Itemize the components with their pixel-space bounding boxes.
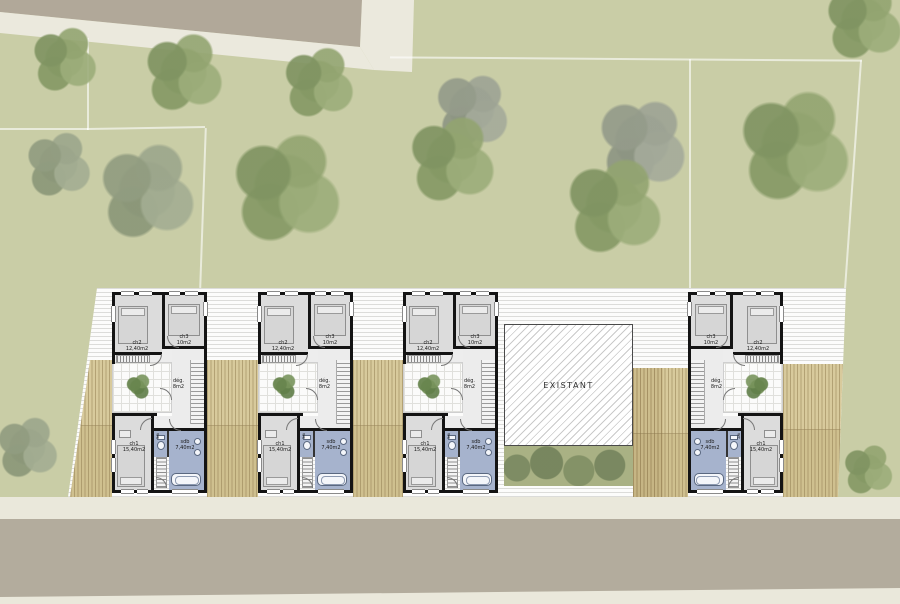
- label-deg: dég.8m2: [704, 378, 729, 390]
- house-unit-4: ch212,40m2 ch310m2 dég.8m2 ch115,40m2 sd…: [688, 292, 783, 493]
- wall: [691, 346, 730, 349]
- window: [111, 306, 116, 322]
- window: [412, 291, 425, 296]
- label-ch3: ch310m2: [311, 334, 349, 346]
- window: [285, 291, 298, 296]
- parcel-line: [199, 128, 206, 288]
- window: [283, 489, 294, 494]
- parcel-line: [390, 56, 862, 61]
- wood-deck: [207, 360, 258, 497]
- courtyard-tree-icon: [124, 373, 152, 401]
- tree-icon: [95, 142, 195, 242]
- wall: [167, 431, 169, 457]
- wall: [738, 413, 783, 416]
- bathtub-symbol: [694, 473, 724, 486]
- desk-symbol: [410, 430, 422, 438]
- label-sdb: sdb7,40m2: [461, 439, 491, 451]
- label-wc: wc: [733, 433, 743, 455]
- window: [257, 306, 262, 322]
- tree-icon: [841, 444, 893, 496]
- bed-symbol: [118, 306, 148, 344]
- window: [779, 440, 784, 454]
- window: [687, 302, 692, 316]
- window: [169, 291, 180, 296]
- label-ch1: ch115,40m2: [743, 441, 779, 453]
- tree-icon: [280, 46, 354, 120]
- wall: [456, 346, 495, 349]
- label-deg: dég.8m2: [457, 378, 482, 390]
- label-deg: dég.8m2: [312, 378, 337, 390]
- label-deg: dég.8m2: [166, 378, 191, 390]
- window: [715, 291, 726, 296]
- window: [121, 489, 134, 494]
- wardrobe: [116, 355, 150, 363]
- window: [430, 291, 443, 296]
- staircase: [336, 360, 350, 424]
- tree-icon: [405, 115, 495, 205]
- window: [779, 458, 784, 472]
- window: [331, 291, 344, 296]
- courtyard-tree-icon: [415, 373, 443, 401]
- window: [121, 291, 134, 296]
- window: [267, 291, 280, 296]
- bed-symbol: [168, 304, 200, 336]
- bed-symbol: [695, 304, 727, 336]
- hedge: [504, 446, 633, 486]
- wardrobe: [407, 355, 441, 363]
- window: [185, 291, 198, 296]
- window: [139, 291, 152, 296]
- wall: [165, 346, 204, 349]
- window: [137, 489, 148, 494]
- bed-symbol: [314, 304, 346, 336]
- label-ch2: ch212,40m2: [741, 340, 775, 352]
- staircase: [190, 360, 204, 424]
- window: [402, 306, 407, 322]
- window: [402, 458, 407, 472]
- label-ch3: ch310m2: [165, 334, 203, 346]
- window: [476, 291, 489, 296]
- existing-building: EXISTANT: [504, 324, 633, 446]
- bed-symbol: [747, 306, 777, 344]
- wall: [495, 292, 498, 493]
- label-ch2: ch212,40m2: [411, 340, 445, 352]
- window: [315, 291, 326, 296]
- desk-symbol: [265, 430, 277, 438]
- bed-symbol: [264, 306, 294, 344]
- label-ch2: ch212,40m2: [120, 340, 154, 352]
- parcel-line: [689, 59, 691, 288]
- label-wc: wc: [298, 433, 308, 455]
- tree-icon: [822, 0, 900, 62]
- window: [460, 291, 471, 296]
- window: [412, 489, 425, 494]
- window: [779, 306, 784, 322]
- site-plan: EXISTANT: [0, 0, 900, 604]
- tree-icon: [734, 89, 850, 205]
- window: [761, 489, 774, 494]
- tree-icon: [562, 157, 662, 257]
- bathtub-symbol: [317, 473, 347, 486]
- tree-icon: [29, 26, 97, 94]
- wall: [726, 431, 728, 457]
- bed-symbol: [459, 304, 491, 336]
- window: [747, 489, 758, 494]
- tree-icon: [23, 131, 91, 199]
- tree-icon: [141, 32, 223, 114]
- wall: [730, 295, 733, 349]
- wall: [311, 346, 350, 349]
- label-ch3: ch310m2: [692, 334, 730, 346]
- window: [349, 302, 354, 316]
- label-sdb: sdb7,40m2: [316, 439, 346, 451]
- house-unit-1: ch212,40m2 ch310m2 dég.8m2 ch115,40m2 sd…: [112, 292, 207, 493]
- window: [697, 489, 723, 494]
- window: [318, 489, 344, 494]
- parcel-line: [87, 126, 205, 130]
- window: [494, 302, 499, 316]
- wood-deck: [783, 364, 845, 497]
- house-unit-3: ch212,40m2 ch310m2 dég.8m2 ch115,40m2 sd…: [403, 292, 498, 493]
- courtyard-tree-icon: [270, 373, 298, 401]
- label-wc: wc: [443, 433, 453, 455]
- window: [111, 458, 116, 472]
- existing-building-label: EXISTANT: [543, 381, 594, 390]
- window: [203, 302, 208, 316]
- wardrobe: [745, 355, 779, 363]
- wall: [204, 292, 207, 493]
- wall: [350, 292, 353, 493]
- window: [463, 489, 489, 494]
- tree-icon: [0, 416, 58, 480]
- desk-symbol: [119, 430, 131, 438]
- wall: [688, 292, 691, 493]
- tree-icon: [227, 132, 341, 246]
- wood-deck: [353, 360, 403, 497]
- desk-symbol: [764, 430, 776, 438]
- house-unit-2: ch212,40m2 ch310m2 dég.8m2 ch115,40m2 sd…: [258, 292, 353, 493]
- label-ch1: ch115,40m2: [116, 441, 152, 453]
- courtyard-tree-icon: [743, 373, 771, 401]
- bed-symbol: [409, 306, 439, 344]
- parcel-line: [0, 128, 88, 130]
- window: [761, 291, 774, 296]
- wood-deck: [633, 368, 663, 497]
- label-ch1: ch115,40m2: [407, 441, 443, 453]
- staircase: [481, 360, 495, 424]
- bathtub-symbol: [462, 473, 492, 486]
- wall: [780, 292, 783, 364]
- wall: [313, 431, 315, 457]
- window: [267, 489, 280, 494]
- bathtub-symbol: [171, 473, 201, 486]
- label-wc: wc: [152, 433, 162, 455]
- label-sdb: sdb7,40m2: [695, 439, 725, 451]
- label-sdb: sdb7,40m2: [170, 439, 200, 451]
- wall: [458, 431, 460, 457]
- wardrobe: [262, 355, 296, 363]
- label-ch2: ch212,40m2: [266, 340, 300, 352]
- window: [172, 489, 198, 494]
- label-ch1: ch115,40m2: [262, 441, 298, 453]
- staircase: [691, 360, 705, 424]
- window: [697, 291, 710, 296]
- window: [743, 291, 756, 296]
- window: [428, 489, 439, 494]
- window: [257, 458, 262, 472]
- label-ch3: ch310m2: [456, 334, 494, 346]
